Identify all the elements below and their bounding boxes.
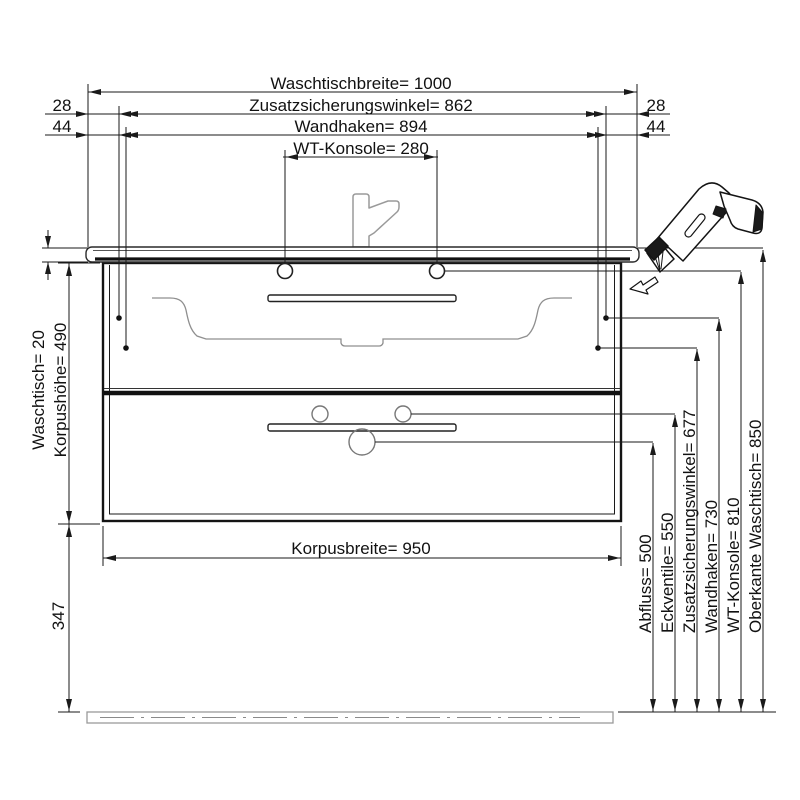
offset-44-left: 44 bbox=[53, 117, 72, 136]
dim-oberkante-waschtisch: Oberkante Waschtisch= 850 bbox=[746, 420, 765, 633]
wt-konsole-left-circle bbox=[278, 264, 293, 279]
washbasin bbox=[86, 247, 639, 262]
wandhaken-left-dot bbox=[116, 315, 122, 321]
zusatzwinkel-left-dot bbox=[123, 345, 129, 351]
bottom-drawer-handle bbox=[268, 424, 456, 431]
dim-waschtisch-hoehe: Waschtisch= 20 bbox=[29, 330, 48, 450]
floor-slab bbox=[58, 712, 776, 723]
dim-wt-konsole-top: WT-Konsole= 280 bbox=[293, 139, 429, 158]
drill-icon bbox=[630, 183, 763, 294]
dim-zusatzsicherungswinkel-top: Zusatzsicherungswinkel= 862 bbox=[249, 96, 472, 115]
offset-28-right: 28 bbox=[647, 96, 666, 115]
faucet-icon bbox=[353, 194, 399, 247]
top-drawer-handle bbox=[268, 295, 456, 302]
wt-konsole-right-circle bbox=[430, 264, 445, 279]
dim-wt-konsole-right: WT-Konsole= 810 bbox=[724, 497, 743, 633]
insertion-arrow-icon bbox=[630, 277, 658, 294]
dim-wandhaken-right: Wandhaken= 730 bbox=[702, 500, 721, 633]
technical-drawing: Waschtischbreite= 1000 Zusatzsicherungsw… bbox=[0, 0, 800, 800]
dim-korpushoehe: Korpushöhe= 490 bbox=[51, 323, 70, 458]
dim-sockel-347: 347 bbox=[49, 602, 68, 630]
dim-waschtischbreite: Waschtischbreite= 1000 bbox=[270, 74, 451, 93]
offset-44-right: 44 bbox=[647, 117, 666, 136]
offset-28-left: 28 bbox=[53, 96, 72, 115]
dim-eckventile: Eckventile= 550 bbox=[658, 513, 677, 634]
vanity-cabinet bbox=[86, 194, 639, 521]
dim-wandhaken-top: Wandhaken= 894 bbox=[294, 117, 427, 136]
dim-abfluss: Abfluss= 500 bbox=[636, 534, 655, 633]
dim-korpusbreite: Korpusbreite= 950 bbox=[291, 539, 430, 558]
dim-zusatzsicherungswinkel-right: Zusatzsicherungswinkel= 677 bbox=[680, 410, 699, 633]
